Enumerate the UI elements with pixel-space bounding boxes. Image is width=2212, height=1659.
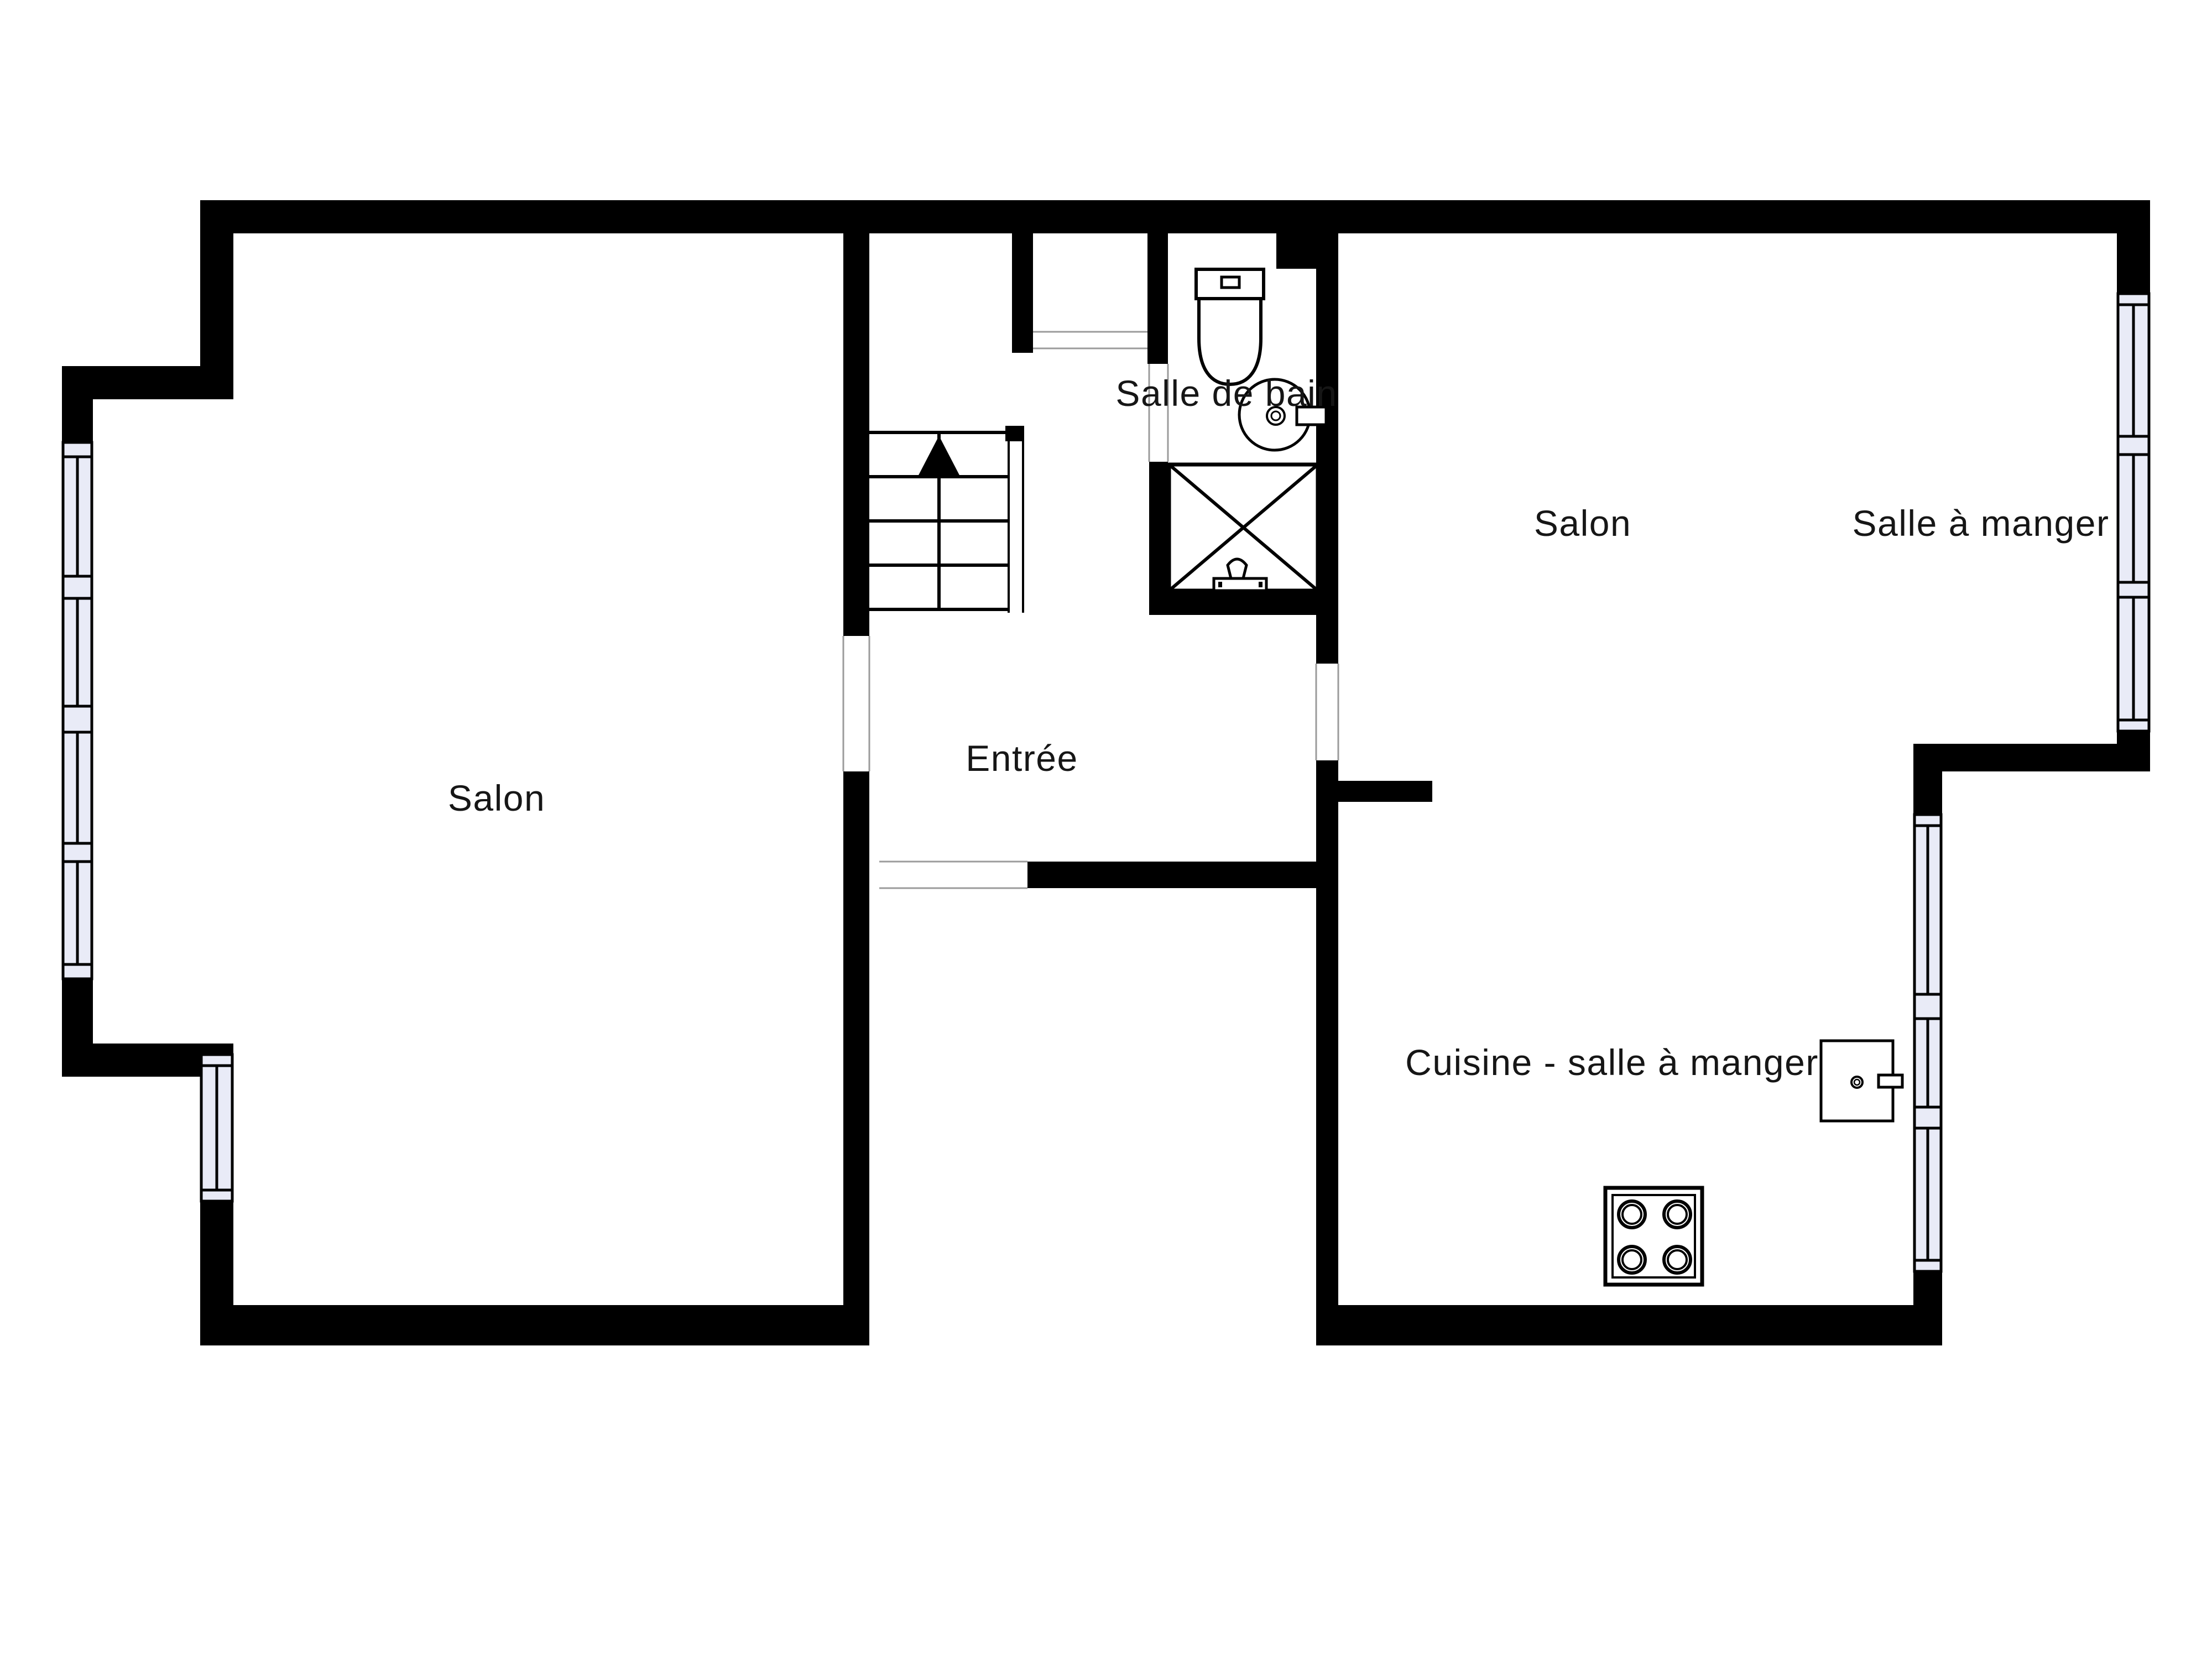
- window-right-wall: [2118, 294, 2149, 731]
- room-label-salon-right: Salon: [1534, 503, 1631, 544]
- room-label-cuisine: Cuisine - salle à manger: [1405, 1042, 1819, 1083]
- wall-bottom-right: [1316, 1305, 1942, 1345]
- walls: [62, 200, 2150, 1345]
- wall-top: [200, 200, 2150, 233]
- wall-bottom-left: [200, 1305, 869, 1345]
- windows: [63, 294, 2149, 1271]
- room-label-salon-left: Salon: [448, 778, 545, 818]
- wall-b: [1012, 233, 1033, 353]
- stove-icon: [1605, 1188, 1702, 1285]
- room-label-entree: Entrée: [966, 738, 1078, 779]
- wall-d-upper: [1316, 233, 1338, 664]
- door-closet: [1033, 332, 1147, 348]
- wall-kitchen-stub: [1338, 781, 1432, 802]
- stairs-direction-arrow: [917, 436, 961, 478]
- room-label-salle-de-bain: Salle de bain: [1115, 373, 1337, 414]
- window-lower-right-wall: [1914, 815, 1941, 1271]
- stairs-up-icon: [869, 429, 1023, 613]
- wall-a-lower: [843, 771, 869, 1345]
- door-salon-right: [1316, 664, 1338, 760]
- wall-d-lower: [1316, 760, 1338, 1345]
- door-salon-left: [843, 636, 869, 771]
- wall-right-step: [1913, 744, 2150, 771]
- room-label-salle-a-manger: Salle à manger: [1853, 503, 2110, 544]
- wall-a-upper: [843, 233, 869, 636]
- shower-icon: [1169, 465, 1318, 591]
- window-lower-left-wall: [201, 1055, 232, 1201]
- wall-c: [1147, 233, 1168, 364]
- toilet-icon: [1196, 269, 1264, 384]
- floor-plan-page: Salon Entrée Salle de bain Salon Salle à…: [0, 0, 2212, 1659]
- kitchen-sink-icon: [1821, 1041, 1902, 1121]
- wall-bath-bottom: [1149, 589, 1338, 615]
- wall-entree-bottom: [1027, 862, 1338, 888]
- window-left-wall: [63, 442, 92, 979]
- door-entree-main: [879, 862, 1027, 888]
- floor-plan: Salon Entrée Salle de bain Salon Salle à…: [0, 0, 2212, 1659]
